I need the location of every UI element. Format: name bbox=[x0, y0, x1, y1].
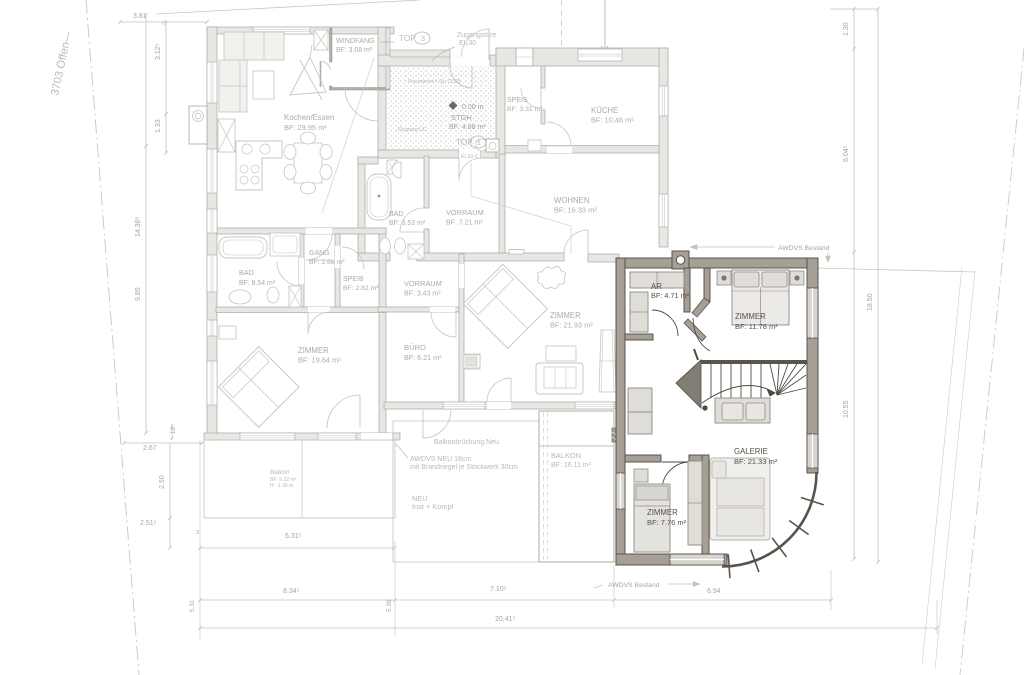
svg-text:18: 18 bbox=[170, 427, 177, 434]
svg-text:BAD: BAD bbox=[389, 209, 404, 218]
svg-text:BF: 2.82 m²: BF: 2.82 m² bbox=[343, 285, 379, 292]
svg-text:18.50: 18.50 bbox=[867, 293, 874, 311]
svg-text:ZIMMER: ZIMMER bbox=[647, 508, 678, 517]
svg-text:6.04⁵: 6.04⁵ bbox=[843, 145, 850, 162]
svg-text:Inst + Kompl: Inst + Kompl bbox=[412, 502, 454, 511]
svg-text:BF: 7.76 m²: BF: 7.76 m² bbox=[647, 518, 687, 527]
svg-text:BF: 7.21 m²: BF: 7.21 m² bbox=[446, 220, 483, 227]
svg-text:BF: 21.33 m²: BF: 21.33 m² bbox=[734, 457, 778, 466]
svg-text:BF: 2.66 m²: BF: 2.66 m² bbox=[309, 259, 345, 266]
svg-text:VORRAUM: VORRAUM bbox=[404, 279, 442, 288]
svg-text:BF: 16.11 m²: BF: 16.11 m² bbox=[551, 462, 592, 469]
svg-text:H: -1.35 m: H: -1.35 m bbox=[270, 483, 293, 489]
svg-text:0.00 m: 0.00 m bbox=[462, 104, 484, 111]
svg-text:BF: 21.93 m²: BF: 21.93 m² bbox=[550, 321, 593, 330]
svg-text:6.31⁵: 6.31⁵ bbox=[285, 533, 302, 540]
svg-text:Kochen/Essen: Kochen/Essen bbox=[284, 113, 334, 122]
svg-text:BF: 19.64 m²: BF: 19.64 m² bbox=[298, 356, 341, 365]
svg-text:AWDVS NEU 18cm: AWDVS NEU 18cm bbox=[410, 456, 471, 463]
svg-text:9.85: 9.85 bbox=[135, 287, 142, 301]
svg-text:AWDVS Bestand: AWDVS Bestand bbox=[608, 582, 660, 589]
svg-text:BF: 3.31 m²: BF: 3.31 m² bbox=[507, 106, 543, 113]
svg-text:BF: 8.54 m²: BF: 8.54 m² bbox=[239, 280, 276, 287]
svg-text:3: 3 bbox=[196, 530, 199, 536]
svg-text:5.39: 5.39 bbox=[386, 599, 393, 612]
svg-text:BF: 11.78 m²: BF: 11.78 m² bbox=[735, 322, 778, 331]
svg-text:10.55: 10.55 bbox=[843, 400, 850, 418]
svg-text:VORRAUM: VORRAUM bbox=[446, 208, 484, 217]
svg-text:BF: 3.08 m²: BF: 3.08 m² bbox=[336, 47, 373, 54]
svg-text:mit Brandriegel je Stockwerk 3: mit Brandriegel je Stockwerk 30cm bbox=[410, 464, 518, 471]
svg-text:2.50: 2.50 bbox=[159, 475, 166, 489]
svg-text:ZIMMER: ZIMMER bbox=[735, 312, 766, 321]
svg-text:ZIMMER: ZIMMER bbox=[298, 346, 329, 355]
svg-text:Flachdecke I-Qu CD25: Flachdecke I-Qu CD25 bbox=[408, 79, 461, 85]
svg-text:BALKON: BALKON bbox=[551, 451, 581, 460]
svg-text:BF: 4.88 m²: BF: 4.88 m² bbox=[449, 124, 486, 131]
svg-text:STGH: STGH bbox=[451, 113, 472, 122]
svg-text:1: 1 bbox=[477, 138, 481, 147]
svg-text:AR: AR bbox=[651, 282, 662, 291]
svg-text:BF: 3.53 m²: BF: 3.53 m² bbox=[389, 220, 426, 227]
svg-text:20.41⁵: 20.41⁵ bbox=[495, 616, 516, 623]
svg-text:BF: 3.43 m²: BF: 3.43 m² bbox=[404, 291, 441, 298]
svg-text:BF: 10.48 m²: BF: 10.48 m² bbox=[591, 116, 634, 125]
svg-text:Balkonbrückung Neu: Balkonbrückung Neu bbox=[434, 439, 499, 446]
svg-text:BF: 4.71 m²: BF: 4.71 m² bbox=[651, 291, 690, 300]
svg-text:BÜRO: BÜRO bbox=[404, 343, 426, 352]
svg-text:GANG: GANG bbox=[309, 250, 330, 257]
svg-text:Zugangstüre: Zugangstüre bbox=[457, 32, 496, 39]
svg-text:BF: 29.95 m²: BF: 29.95 m² bbox=[284, 123, 327, 132]
svg-text:1.33: 1.33 bbox=[155, 119, 162, 133]
svg-text:2.51⁵: 2.51⁵ bbox=[140, 520, 157, 527]
svg-text:1.30: 1.30 bbox=[843, 22, 850, 36]
svg-text:3.12⁵: 3.12⁵ bbox=[155, 43, 162, 60]
svg-text:3: 3 bbox=[421, 34, 425, 43]
svg-text:SPEIB: SPEIB bbox=[343, 276, 364, 283]
svg-text:3.81: 3.81 bbox=[133, 13, 147, 20]
svg-text:WINDFANG: WINDFANG bbox=[336, 36, 375, 45]
svg-text:Flugweg UC: Flugweg UC bbox=[398, 127, 427, 133]
svg-text:EI₂30: EI₂30 bbox=[459, 40, 476, 47]
svg-text:KÜCHE: KÜCHE bbox=[591, 106, 618, 115]
svg-text:ZIMMER: ZIMMER bbox=[550, 311, 581, 320]
svg-text:BF: 6.21 m²: BF: 6.21 m² bbox=[404, 353, 442, 362]
svg-text:7.10⁵: 7.10⁵ bbox=[490, 586, 507, 593]
svg-text:Balkon: Balkon bbox=[270, 469, 290, 476]
svg-text:6.94: 6.94 bbox=[707, 588, 721, 595]
svg-text:EI₂30-C: EI₂30-C bbox=[461, 154, 479, 160]
svg-text:BF: 16.33 m²: BF: 16.33 m² bbox=[554, 206, 597, 215]
svg-text:SPEIS: SPEIS bbox=[507, 97, 528, 104]
svg-text:14.36⁵: 14.36⁵ bbox=[135, 216, 142, 237]
svg-text:8.34⁵: 8.34⁵ bbox=[283, 588, 300, 595]
svg-text:GALERIE: GALERIE bbox=[734, 447, 768, 456]
svg-text:BAD: BAD bbox=[239, 268, 254, 277]
svg-text:5.31: 5.31 bbox=[189, 599, 196, 612]
svg-text:2.67: 2.67 bbox=[143, 445, 157, 452]
svg-text:WOHNEN: WOHNEN bbox=[554, 196, 590, 205]
svg-text:AWDVS Bestand: AWDVS Bestand bbox=[778, 245, 830, 252]
